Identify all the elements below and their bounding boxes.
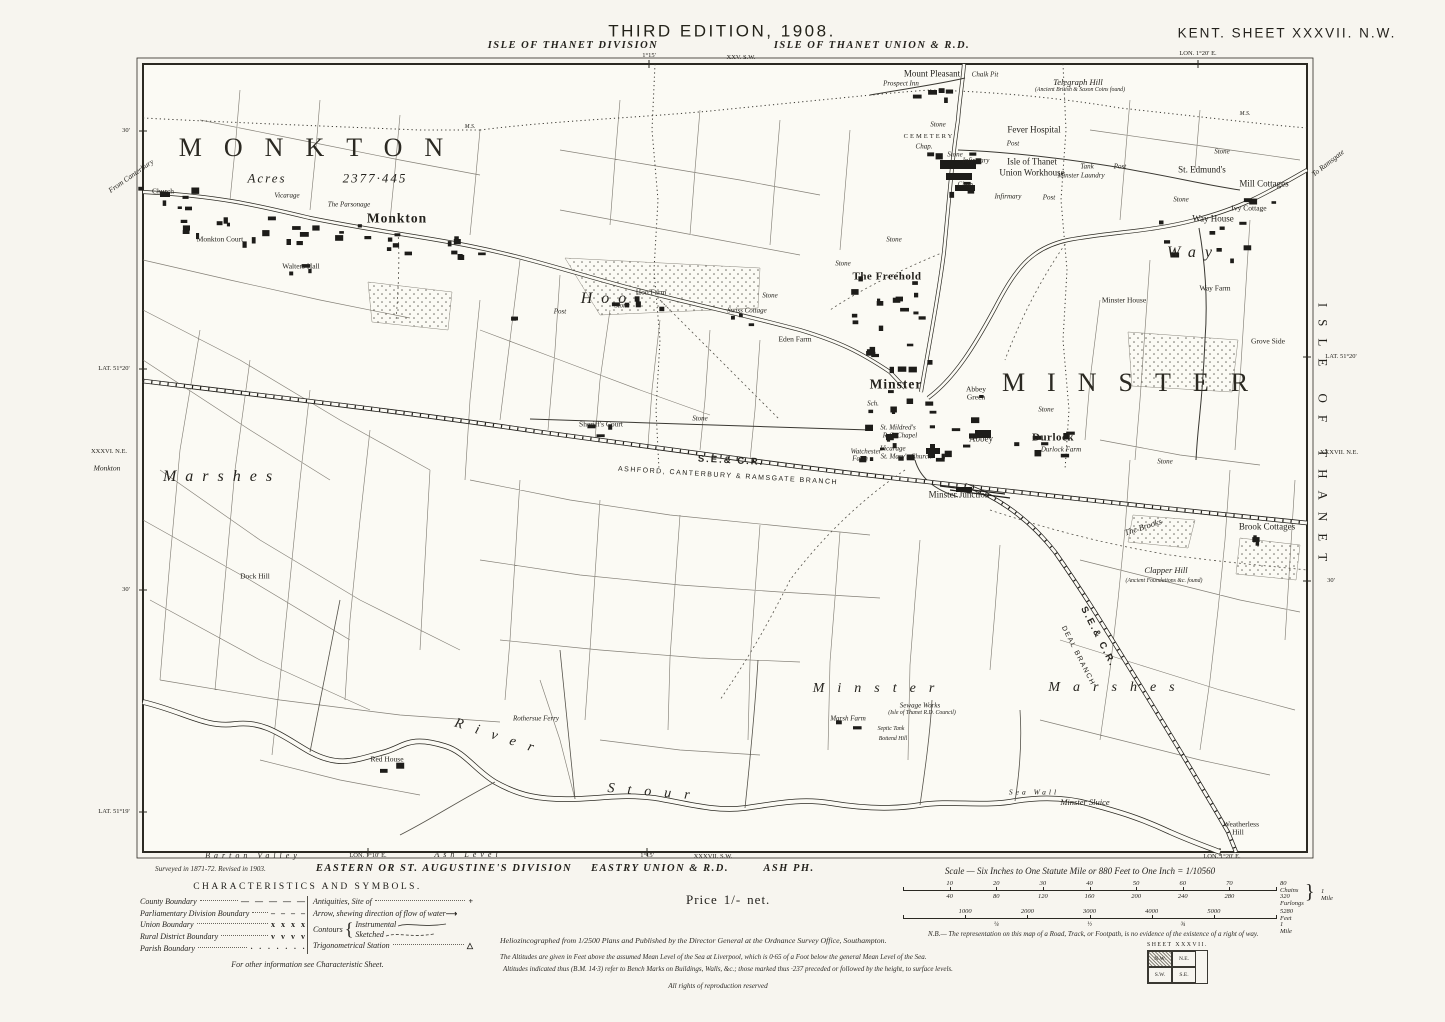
map-label: Eden Farm — [778, 335, 811, 343]
map-label: (Isle of Thanet R.D. Council) — [888, 711, 956, 717]
building — [262, 230, 269, 236]
scale-tick-label: 70 — [1226, 880, 1233, 887]
margin-label: LON. 1°10' E. — [349, 853, 386, 860]
building — [358, 224, 362, 227]
legend-label: Parish Boundary — [140, 944, 195, 953]
map-label: M.S. — [1240, 112, 1251, 118]
map-label: Chalk Pit — [972, 72, 999, 79]
survey-note: Surveyed in 1871-72. Revised in 1903. — [155, 865, 266, 873]
legend-row: Parliamentary Division Boundary– – – – — [140, 908, 307, 920]
price-value: 1/- — [718, 892, 747, 907]
building — [597, 434, 605, 437]
legend-row: Trigonometrical Station△ — [313, 940, 475, 952]
margin-label: 30' — [1327, 578, 1335, 585]
map-label: Minster Laundry — [1057, 173, 1104, 180]
map-label: Green — [967, 393, 985, 401]
sheet-cell-se: S.E. — [1172, 967, 1196, 983]
building — [459, 255, 464, 260]
map-label: St. Edmund's — [1178, 166, 1226, 175]
boundary-symbol: – – – – — [271, 909, 307, 918]
building — [511, 317, 518, 321]
scale-tick-label: 3000 — [1083, 908, 1096, 915]
map-label: (Ancient Foundations &c. found) — [1126, 579, 1203, 585]
building — [1014, 442, 1019, 446]
map-label: Stone — [1214, 149, 1230, 156]
building — [224, 217, 228, 223]
margin-label: 1°15' — [642, 53, 656, 60]
building — [853, 726, 862, 729]
publication-note: Heliozincographed from 1/2500 Plans and … — [500, 936, 887, 945]
building — [936, 153, 943, 159]
building — [944, 98, 948, 104]
building — [1230, 259, 1234, 264]
margin-label: EASTERN OR ST. AUGUSTINE'S DIVISION — [316, 864, 572, 875]
price-line: Price1/-net. — [686, 892, 770, 908]
scale-tick-label: 80 — [993, 893, 1000, 900]
map-label: Sewage Works — [900, 703, 940, 710]
legend-label: Antiquities, Site of — [313, 897, 372, 906]
map-label: MINSTER — [1002, 370, 1270, 396]
leader-dots — [221, 935, 268, 936]
building — [1210, 231, 1216, 235]
building — [852, 314, 857, 318]
map-label: CEMETERY — [904, 134, 955, 141]
map-label: Stone — [886, 237, 902, 244]
map-label: St. Mildred's — [880, 425, 915, 432]
building — [312, 225, 319, 230]
margin-label: Barton Valley — [205, 852, 301, 860]
building — [339, 231, 344, 234]
map-label: Sch. — [867, 401, 879, 408]
scale-tick-label: 120 — [1038, 893, 1048, 900]
map-label: Abbey — [969, 435, 993, 444]
margin-label: LON. 1°20' E. — [1203, 854, 1240, 861]
building — [925, 402, 933, 406]
building — [939, 88, 945, 93]
leader-dots — [198, 947, 247, 948]
map-label: Marshes — [163, 469, 281, 485]
building — [946, 90, 953, 94]
map-label: Fever Hospital — [1007, 126, 1060, 135]
building — [217, 221, 223, 225]
scale-tick-label: 5000 — [1207, 908, 1220, 915]
scale-tick — [1043, 887, 1044, 891]
map-label: Infirmary — [995, 194, 1022, 201]
map-label: Way House — [1192, 215, 1234, 224]
building — [454, 239, 461, 244]
scale-tick — [1090, 915, 1091, 919]
map-label: Brook Cottages — [1239, 523, 1295, 532]
os-map-sheet: MONKTONAcres2377·445ChurchMonkton CourtV… — [0, 0, 1445, 1022]
map-label: Vicarage — [880, 446, 905, 453]
building — [448, 241, 452, 246]
trig-station-symbol: △ — [467, 941, 475, 950]
building — [896, 297, 903, 302]
margin-label: ASH PH. — [763, 864, 814, 875]
scale-tick-label: 160 — [1085, 893, 1095, 900]
scale-tick-label: 40 — [946, 893, 953, 900]
building — [879, 326, 883, 331]
map-label: Union Workhouse — [999, 169, 1064, 178]
building — [1220, 227, 1225, 230]
map-label: Post — [554, 309, 566, 316]
map-label: Minster — [813, 682, 948, 696]
building — [478, 253, 486, 256]
building — [388, 238, 392, 242]
building — [138, 187, 143, 191]
margin-label: LAT. 51°20' — [98, 366, 129, 373]
building — [185, 207, 192, 211]
scale-tick — [1229, 887, 1230, 891]
map-label: Stone — [1173, 197, 1189, 204]
building — [268, 217, 276, 221]
margin-label: LAT. 51°19' — [98, 809, 129, 816]
building — [868, 410, 873, 413]
leader-dots — [252, 912, 268, 913]
rights-note: All rights of reproduction reserved — [668, 982, 767, 990]
scale-tick-label: 1 Mile — [1280, 921, 1292, 935]
boundary-symbol: — — — — — — [241, 897, 307, 906]
map-label: St. Mary's Church — [881, 454, 932, 461]
building — [927, 152, 934, 156]
margin-label: XXV. S.W. — [727, 55, 756, 62]
building — [731, 316, 735, 320]
legend-label: Parliamentary Division Boundary — [140, 909, 249, 918]
union-label-right: ISLE OF THANET UNION & R.D. — [774, 41, 970, 52]
building — [183, 230, 190, 234]
boundary-symbol: x x x x — [271, 920, 307, 929]
legend-label: County Boundary — [140, 897, 197, 906]
building — [870, 457, 873, 461]
map-label: Stone — [1157, 459, 1173, 466]
building — [335, 235, 343, 241]
margin-label: XXXVI. N.E. — [91, 449, 127, 456]
map-label: Chap. — [916, 144, 933, 151]
margin-label: EASTRY UNION & R.D. — [591, 864, 729, 875]
legend-title: CHARACTERISTICS AND SYMBOLS. — [140, 882, 475, 892]
building — [178, 206, 182, 209]
building — [963, 445, 970, 448]
map-label: Marshes — [1048, 681, 1187, 695]
map-label: Post — [1043, 195, 1055, 202]
margin-label: Monkton — [94, 464, 121, 472]
legend-characteristics: CHARACTERISTICS AND SYMBOLS. County Boun… — [140, 882, 475, 969]
building — [1256, 539, 1260, 545]
legend-label: Rural District Boundary — [140, 932, 218, 941]
map-label: Farm — [852, 456, 868, 463]
map-label: Swiss Cottage — [727, 308, 766, 315]
building — [387, 247, 391, 251]
leader-dots — [393, 944, 464, 945]
legend-label: Union Boundary — [140, 920, 194, 929]
scale-tick-label: 30 — [1040, 880, 1047, 887]
map-label: Dock Hill — [240, 572, 270, 580]
building — [163, 200, 167, 206]
sheet-cell-sw: S.W. — [1148, 967, 1172, 983]
right-of-way-note: N.B.— The representation on this map of … — [928, 930, 1258, 938]
scale-tick-label: 5280 Feet — [1280, 908, 1293, 922]
building — [949, 192, 954, 198]
map-label: Marsh Farm — [830, 716, 866, 723]
map-label: Stone — [614, 303, 630, 310]
scale-tick — [1276, 915, 1277, 919]
map-label: Monkton — [367, 211, 427, 225]
building — [890, 367, 894, 373]
map-label: Hill — [1232, 828, 1244, 836]
margin-label: LON. 1°20' E. — [1179, 51, 1216, 58]
map-label: Stone — [1038, 407, 1054, 414]
map-label: Walters Hall — [282, 262, 320, 270]
building — [395, 233, 401, 236]
building — [907, 399, 914, 405]
legend-label: Arrow, shewing direction of flow of wate… — [313, 909, 446, 918]
map-label: Church — [152, 187, 174, 195]
map-label: Minster — [870, 377, 923, 391]
building — [853, 320, 859, 324]
building — [907, 344, 913, 347]
building — [890, 407, 897, 413]
map-label: Grove Side — [1251, 337, 1285, 345]
map-label: Way Farm — [1199, 284, 1230, 292]
scale-tick-label: 320 Furlongs — [1280, 893, 1304, 907]
building — [1061, 454, 1069, 458]
margin-label: XXXVII. S.W. — [694, 854, 733, 861]
scale-tick-label: 60 — [1180, 880, 1187, 887]
building — [364, 236, 371, 239]
scale-tick-label: 200 — [1131, 893, 1141, 900]
building — [945, 451, 952, 457]
legend-row: Union Boundaryx x x x — [140, 919, 307, 931]
scale-tick — [1152, 915, 1153, 919]
building — [749, 323, 754, 326]
building — [183, 225, 190, 230]
scale-tick — [1276, 887, 1277, 891]
building — [252, 237, 256, 243]
scale-tick-label: 1 Mile — [1321, 888, 1333, 902]
building — [287, 239, 292, 245]
building — [380, 769, 388, 773]
sheet-title: KENT. SHEET XXXVII. N.W. — [1178, 26, 1397, 40]
leader-dots — [200, 900, 238, 901]
building — [393, 243, 399, 247]
map-label: Rothersue Ferry — [513, 716, 559, 723]
map-label: R.C. Chapel — [883, 433, 917, 440]
building — [971, 417, 979, 423]
building — [396, 763, 404, 769]
scale-tick-label: 2000 — [1021, 908, 1034, 915]
altitude-note-2: Altitudes indicated thus (B.M. 14·3) ref… — [503, 965, 953, 973]
map-label: Post — [1114, 164, 1126, 171]
map-label: Septic Tank — [878, 727, 905, 733]
building — [877, 301, 884, 306]
price-net: net. — [747, 892, 770, 907]
legend-row: Rural District Boundaryv v v v — [140, 931, 307, 943]
building — [1159, 221, 1164, 225]
scale-tick — [1027, 915, 1028, 919]
scale-tick — [950, 887, 951, 891]
building — [898, 367, 907, 372]
map-label: Monkton Court — [197, 235, 243, 243]
scale-brace: } — [1305, 881, 1315, 904]
map-label: (Ancient British & Saxon Coins found) — [1035, 88, 1125, 94]
map-label: Ivy Cottage — [1231, 204, 1266, 212]
building — [183, 196, 189, 199]
map-label: Mill Cottages — [1239, 180, 1288, 189]
map-label: Chap. — [958, 182, 975, 189]
building — [927, 360, 932, 365]
map-label: Vicarage — [274, 193, 299, 200]
leader-dots — [375, 900, 466, 901]
building — [900, 308, 909, 312]
leader-dots — [197, 923, 268, 924]
scale-tick — [965, 915, 966, 919]
scale-tick-label: ½ — [1087, 921, 1092, 928]
margin-label: 30' — [122, 128, 130, 135]
scale-tick-label: 240 — [1178, 893, 1188, 900]
building — [1272, 201, 1277, 204]
contour-sketched-line — [384, 931, 436, 939]
map-label: Infirmary — [963, 158, 990, 165]
map-label: Hoo Farm — [636, 288, 667, 296]
margin-label: ISLE OF THANET — [1317, 303, 1330, 573]
map-label: M.S. — [465, 125, 476, 131]
building — [292, 226, 301, 230]
map-label: The Freehold — [852, 272, 921, 283]
map-label: Stone — [762, 293, 778, 300]
building — [405, 252, 412, 256]
scale-title: Scale — Six Inches to One Statute Mile o… — [880, 866, 1280, 876]
scale-tick-label: 50 — [1133, 880, 1140, 887]
building — [1244, 245, 1252, 250]
building — [289, 272, 293, 276]
scale-tick — [903, 887, 904, 891]
sheet-cell-ne: N.E. — [1172, 951, 1196, 967]
building — [636, 301, 641, 307]
map-label: Tank — [1080, 164, 1093, 171]
building — [871, 354, 879, 357]
sheet-index-label: SHEET XXXVII. — [1147, 942, 1208, 948]
contour-instrumental-label: Instrumental — [355, 920, 396, 930]
margin-label: 1°15' — [640, 853, 654, 860]
flow-arrow-icon: ⟶ — [446, 909, 459, 918]
building — [1239, 222, 1246, 225]
map-label: Sheriff's Court — [579, 420, 623, 428]
adjoining-sheet-index: SHEET XXXVII. N.W. N.E. S.W. S.E. — [1147, 942, 1208, 984]
brace: { — [345, 919, 354, 940]
contour-instrumental-line — [396, 921, 448, 929]
building — [952, 428, 960, 431]
building — [913, 312, 918, 315]
division-label-left: ISLE OF THANET DIVISION — [488, 41, 659, 52]
legend-row: Antiquities, Site of+ — [313, 896, 475, 908]
scale-tick-label: 80 Chains — [1280, 880, 1298, 894]
building — [865, 425, 873, 431]
map-label: Bottend Hill — [879, 737, 908, 743]
scale-tick-label: 20 — [993, 880, 1000, 887]
altitude-note-1: The Altitudes are given in Feet above th… — [500, 953, 927, 961]
map-label: Clapper Hill — [1144, 566, 1187, 575]
map-label: Post — [1007, 141, 1019, 148]
legend-label: Contours — [313, 925, 343, 934]
map-label: Prospect Inn — [883, 81, 919, 88]
building — [300, 232, 309, 237]
building — [942, 454, 945, 459]
building — [191, 188, 199, 194]
scale-tick — [996, 887, 997, 891]
map-label: Way — [1167, 245, 1221, 261]
map-label: 2377·445 — [343, 172, 408, 185]
map-label: Minster House — [1102, 296, 1146, 304]
map-label: Minster Sluice — [1060, 798, 1109, 807]
map-label: Stone — [835, 261, 851, 268]
boundary-symbol: · · · · · · · — [250, 944, 307, 953]
price-label: Price — [686, 892, 718, 907]
building — [930, 425, 935, 428]
antiquities-symbol: + — [468, 897, 475, 906]
edition-title: THIRD EDITION, 1908. — [608, 23, 836, 40]
scale-tick-label: 1000 — [959, 908, 972, 915]
building — [181, 220, 188, 223]
building — [659, 307, 664, 312]
margin-label: Ash Level — [434, 851, 501, 859]
legend-left-column: County Boundary— — — — — Parliamentary D… — [140, 896, 307, 954]
scale-tick — [903, 915, 904, 919]
building — [928, 90, 937, 95]
building — [909, 367, 917, 373]
scale-tick — [1136, 887, 1137, 891]
map-label: Acres — [247, 172, 286, 185]
building — [914, 293, 918, 298]
map-label: Stone — [947, 152, 963, 159]
building — [936, 458, 945, 462]
scale-tick-label: 280 — [1225, 893, 1235, 900]
scale-tick — [1214, 915, 1215, 919]
margin-label: 30' — [122, 587, 130, 594]
map-label: The Parsonage — [328, 202, 371, 209]
scale-tick — [1183, 887, 1184, 891]
map-label: Durlock Farm — [1041, 447, 1081, 454]
scale-tick-label: ¾ — [1180, 921, 1185, 928]
map-label: Isle of Thanet — [1007, 158, 1057, 167]
building — [969, 153, 976, 156]
building — [451, 251, 457, 255]
legend-row: Arrow, shewing direction of flow of wate… — [313, 908, 475, 920]
building — [919, 316, 926, 319]
map-label: Durlock — [1032, 433, 1074, 444]
building — [851, 289, 858, 295]
map-label: Telegraph Hill — [1053, 78, 1103, 87]
sheet-cell-nw: N.W. — [1148, 951, 1172, 967]
map-label: Mount Pleasant — [904, 70, 960, 79]
building — [867, 349, 871, 355]
legend-label: Trigonometrical Station — [313, 941, 390, 950]
legend-right-column: Antiquities, Site of+ Arrow, shewing dir… — [307, 896, 475, 954]
map-label: Minster Junction — [929, 491, 990, 500]
scale-tick-label: 4000 — [1145, 908, 1158, 915]
map-label: Stone — [930, 122, 946, 129]
boundary-symbol: v v v v — [271, 932, 307, 941]
legend-row: Parish Boundary· · · · · · · — [140, 942, 307, 954]
map-label: Sea Wall — [1009, 788, 1059, 796]
map-label: MONKTON — [179, 135, 465, 161]
scale-tick-label: 40 — [1086, 880, 1093, 887]
building — [930, 411, 937, 414]
scale-tick-label: ¼ — [994, 921, 999, 928]
legend-footer: For other information see Characteristic… — [140, 960, 475, 969]
legend-contours: Contours { Instrumental Sketched — [313, 919, 475, 940]
map-label: Stone — [692, 416, 708, 423]
contour-sketched-label: Sketched — [355, 930, 383, 940]
